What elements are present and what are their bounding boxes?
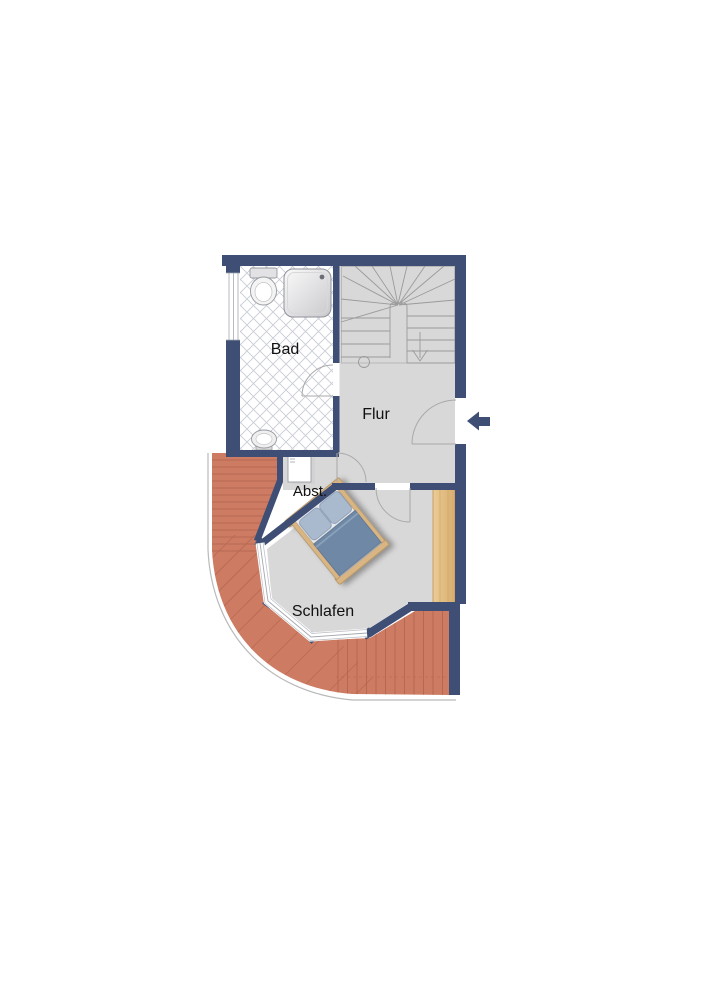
wall-bad-flur-lower bbox=[333, 396, 340, 452]
washing-machine bbox=[288, 456, 315, 484]
floor-plan-svg: Bad Flur Abst. Schlafen bbox=[0, 0, 704, 1000]
window-bad-left bbox=[226, 273, 240, 340]
wall-flur-schlafen-right bbox=[410, 483, 455, 490]
shower bbox=[284, 269, 331, 317]
entrance-opening bbox=[455, 398, 466, 444]
wall-right-lower bbox=[449, 602, 460, 695]
entrance-arrow-icon bbox=[467, 412, 490, 431]
wall-right-upper bbox=[455, 266, 466, 398]
label-bad: Bad bbox=[271, 341, 299, 358]
wall-flur-schlafen-left bbox=[332, 483, 375, 490]
schlafen-door-opening bbox=[375, 483, 410, 490]
wall-schlafen-bottom-right bbox=[408, 602, 455, 611]
wall-top bbox=[222, 255, 466, 266]
bad-door-opening bbox=[333, 363, 340, 396]
floor-plan-page: Bad Flur Abst. Schlafen bbox=[0, 0, 704, 1000]
wall-left-lower bbox=[226, 340, 240, 453]
label-schlafen: Schlafen bbox=[292, 603, 354, 620]
label-abst: Abst. bbox=[293, 483, 327, 500]
wall-left-upper bbox=[226, 266, 240, 273]
wall-bad-flur-upper bbox=[333, 266, 340, 363]
label-flur: Flur bbox=[362, 406, 390, 423]
wall-terrace-vertical bbox=[277, 450, 283, 482]
wardrobe bbox=[433, 489, 455, 603]
toilet bbox=[250, 268, 277, 305]
wall-right-middle bbox=[455, 444, 466, 604]
shower-drain bbox=[320, 275, 325, 280]
